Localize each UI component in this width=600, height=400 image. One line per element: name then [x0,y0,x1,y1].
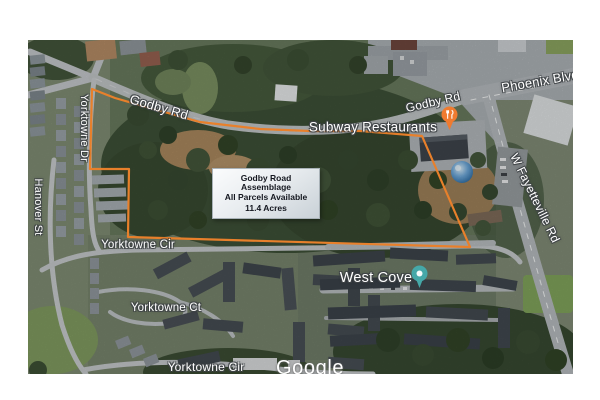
info-box-title: Godby Road Assemblage [215,174,317,191]
restaurant-pin-icon[interactable] [441,106,458,136]
road-label-hanover-st: Hanover St [32,178,44,235]
map-info-box: Godby Road Assemblage All Parcels Availa… [212,168,320,219]
road-label-yorktowne-dr: Yorktowne Dr [78,94,90,162]
west-cove-pin-icon[interactable] [411,265,428,294]
info-box-acreage: 11.4 Acres [245,204,287,213]
google-watermark: Google [276,357,344,374]
road-label-yorktowne-ct: Yorktowne Ct [131,302,201,314]
poi-label-west-cove[interactable]: West Cove [340,270,412,286]
satellite-map-canvas[interactable]: Godby Rd Godby Rd Phoenix Blvd W Fayette… [28,40,573,374]
road-label-yorktowne-cir-north: Yorktowne Cir [101,239,175,251]
listing-map-figure: Godby Rd Godby Rd Phoenix Blvd W Fayette… [0,0,600,400]
info-box-availability: All Parcels Available [225,193,308,202]
poi-label-subway-restaurants[interactable]: Subway Restaurants [309,120,437,135]
road-label-yorktowne-cir-south: Yorktowne Cir [168,360,245,374]
